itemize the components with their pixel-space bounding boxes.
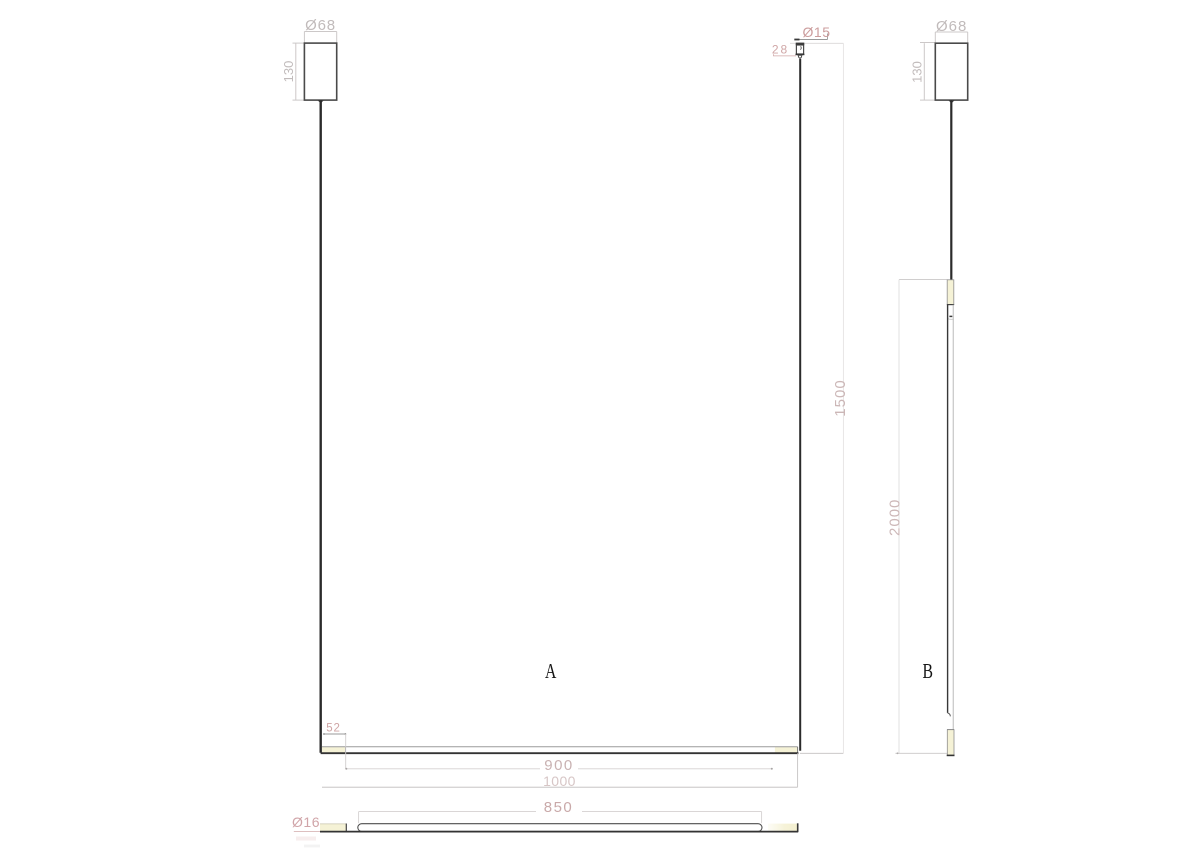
svg-text:Ø15: Ø15 <box>803 24 831 40</box>
svg-text:2000: 2000 <box>886 499 903 536</box>
svg-text:Ø16: Ø16 <box>292 814 320 830</box>
svg-text:B: B <box>922 660 933 684</box>
svg-text:850: 850 <box>544 799 574 816</box>
svg-text:A: A <box>545 660 557 684</box>
svg-text:130: 130 <box>909 61 924 83</box>
svg-text:900: 900 <box>544 757 574 774</box>
svg-text:28: 28 <box>772 42 789 56</box>
svg-text:1500: 1500 <box>832 379 849 416</box>
svg-text:52: 52 <box>326 722 340 734</box>
svg-text:Ø68: Ø68 <box>305 17 336 34</box>
svg-text:130: 130 <box>281 61 296 83</box>
svg-text:Ø68: Ø68 <box>936 18 967 35</box>
svg-text:1000: 1000 <box>543 773 576 789</box>
